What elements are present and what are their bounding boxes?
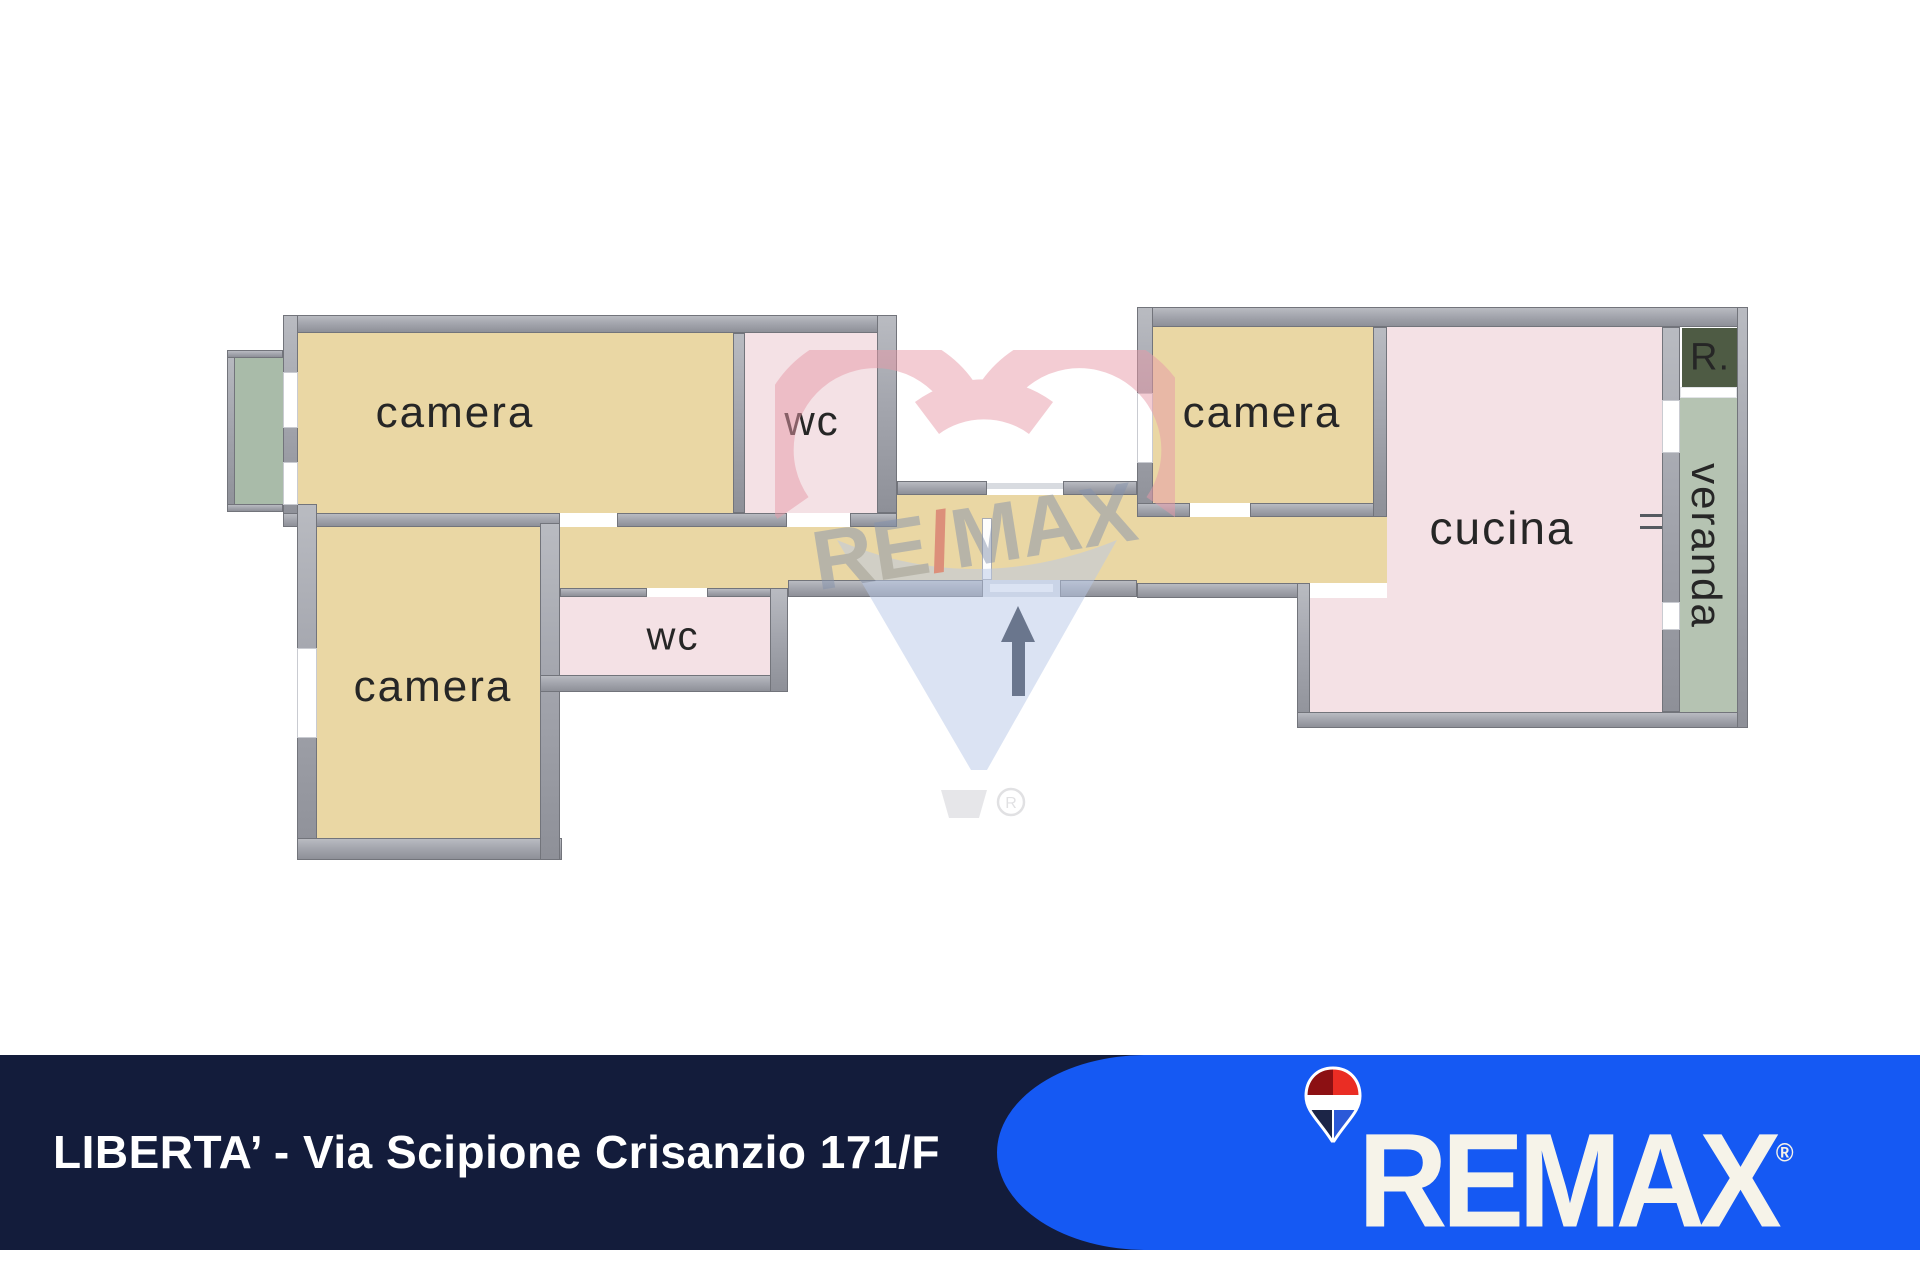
- corridor-right: [1137, 517, 1387, 583]
- remax-wordmark: REMAX®: [1358, 1047, 1794, 1258]
- corridor-center: [897, 495, 1137, 583]
- room-label-camera-bottom-left: camera: [354, 662, 513, 712]
- wall-segment: [540, 675, 788, 692]
- wall-segment: [283, 513, 560, 527]
- wall-segment: [227, 350, 283, 358]
- cucina-room: [1387, 327, 1662, 598]
- room-label-camera-right: camera: [1183, 388, 1342, 438]
- wall-segment: [1137, 583, 1310, 598]
- door-threshold: [990, 584, 1053, 592]
- wall-segment: [297, 838, 562, 860]
- window: [283, 462, 298, 505]
- wall-segment: [733, 333, 745, 513]
- window: [1137, 393, 1153, 463]
- window: [987, 483, 1063, 489]
- window: [1662, 400, 1680, 453]
- corridor-left: [560, 527, 897, 588]
- balloon-basket-icon: [941, 790, 987, 818]
- wall-segment: [897, 481, 987, 495]
- window: [1680, 387, 1737, 398]
- wall-segment: [788, 580, 983, 597]
- wall-segment: [1297, 583, 1310, 728]
- door-tick: [1640, 526, 1662, 529]
- registered-icon: [998, 789, 1024, 815]
- wall-segment: [1297, 712, 1748, 728]
- door-leaf: [982, 518, 992, 580]
- wall-segment: [770, 588, 788, 692]
- window: [283, 372, 298, 428]
- window: [1662, 602, 1680, 630]
- wall-segment: [1063, 481, 1137, 495]
- room-label-camera-top-left: camera: [376, 388, 535, 438]
- wall-segment: [617, 513, 787, 527]
- balcony-room: [235, 358, 283, 504]
- wall-segment: [1060, 580, 1137, 597]
- room-label-veranda: veranda: [1682, 463, 1730, 629]
- window: [297, 648, 317, 738]
- registered-icon: ®: [1776, 1139, 1794, 1168]
- wall-segment: [1250, 503, 1387, 517]
- door-tick: [1640, 514, 1662, 517]
- room-label-cucina: cucina: [1430, 501, 1575, 555]
- wall-segment: [1137, 503, 1190, 517]
- wall-segment: [1737, 307, 1748, 728]
- room-label-wc-lower: wc: [647, 615, 700, 660]
- floorplan-page: camera wc camera wc camera cucina verand…: [0, 0, 1920, 1284]
- wall-segment: [1137, 307, 1748, 327]
- room-label-wc-top: wc: [784, 397, 839, 445]
- wall-segment: [1662, 327, 1680, 712]
- wall-segment: [227, 350, 235, 512]
- wall-segment: [227, 504, 283, 512]
- listing-address: LIBERTA’ - Via Scipione Crisanzio 171/F: [53, 1055, 940, 1250]
- wall-segment: [283, 315, 897, 333]
- remax-pin-logo-icon: [1303, 1066, 1363, 1144]
- wall-segment: [1373, 327, 1387, 517]
- wall-segment: [877, 315, 897, 513]
- wall-segment: [850, 513, 897, 527]
- cucina-room-lower: [1310, 598, 1662, 712]
- room-label-ripostiglio: R.: [1690, 337, 1730, 380]
- wall-segment: [560, 588, 647, 597]
- svg-text:R: R: [1005, 795, 1017, 812]
